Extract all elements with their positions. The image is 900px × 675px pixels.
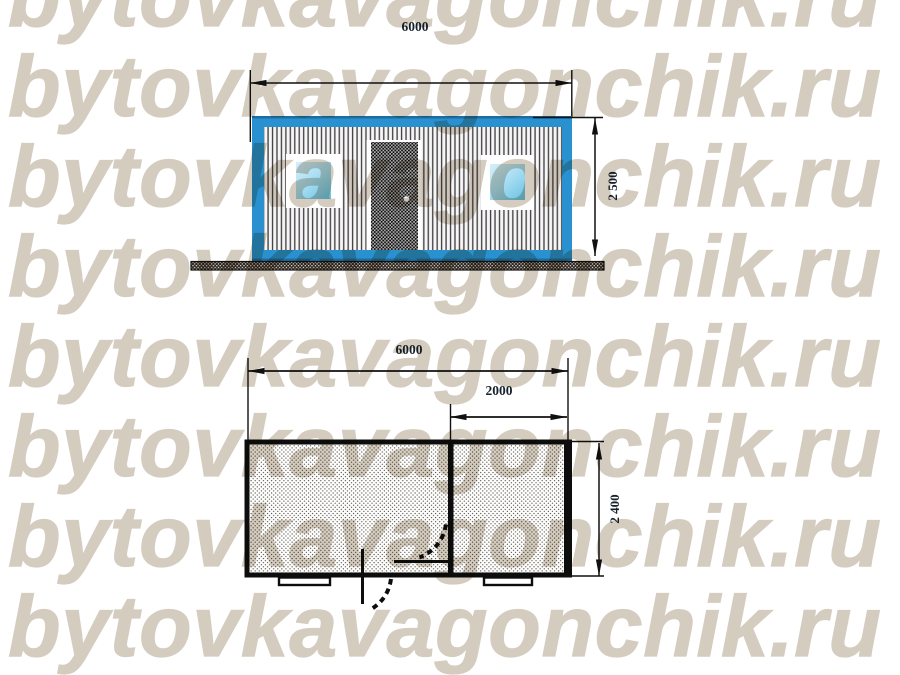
svg-text:6000: 6000 — [402, 19, 429, 34]
svg-text:2 500: 2 500 — [605, 171, 620, 200]
svg-text:6000: 6000 — [396, 342, 423, 357]
svg-text:2 400: 2 400 — [607, 494, 622, 523]
svg-text:2000: 2000 — [486, 383, 513, 398]
